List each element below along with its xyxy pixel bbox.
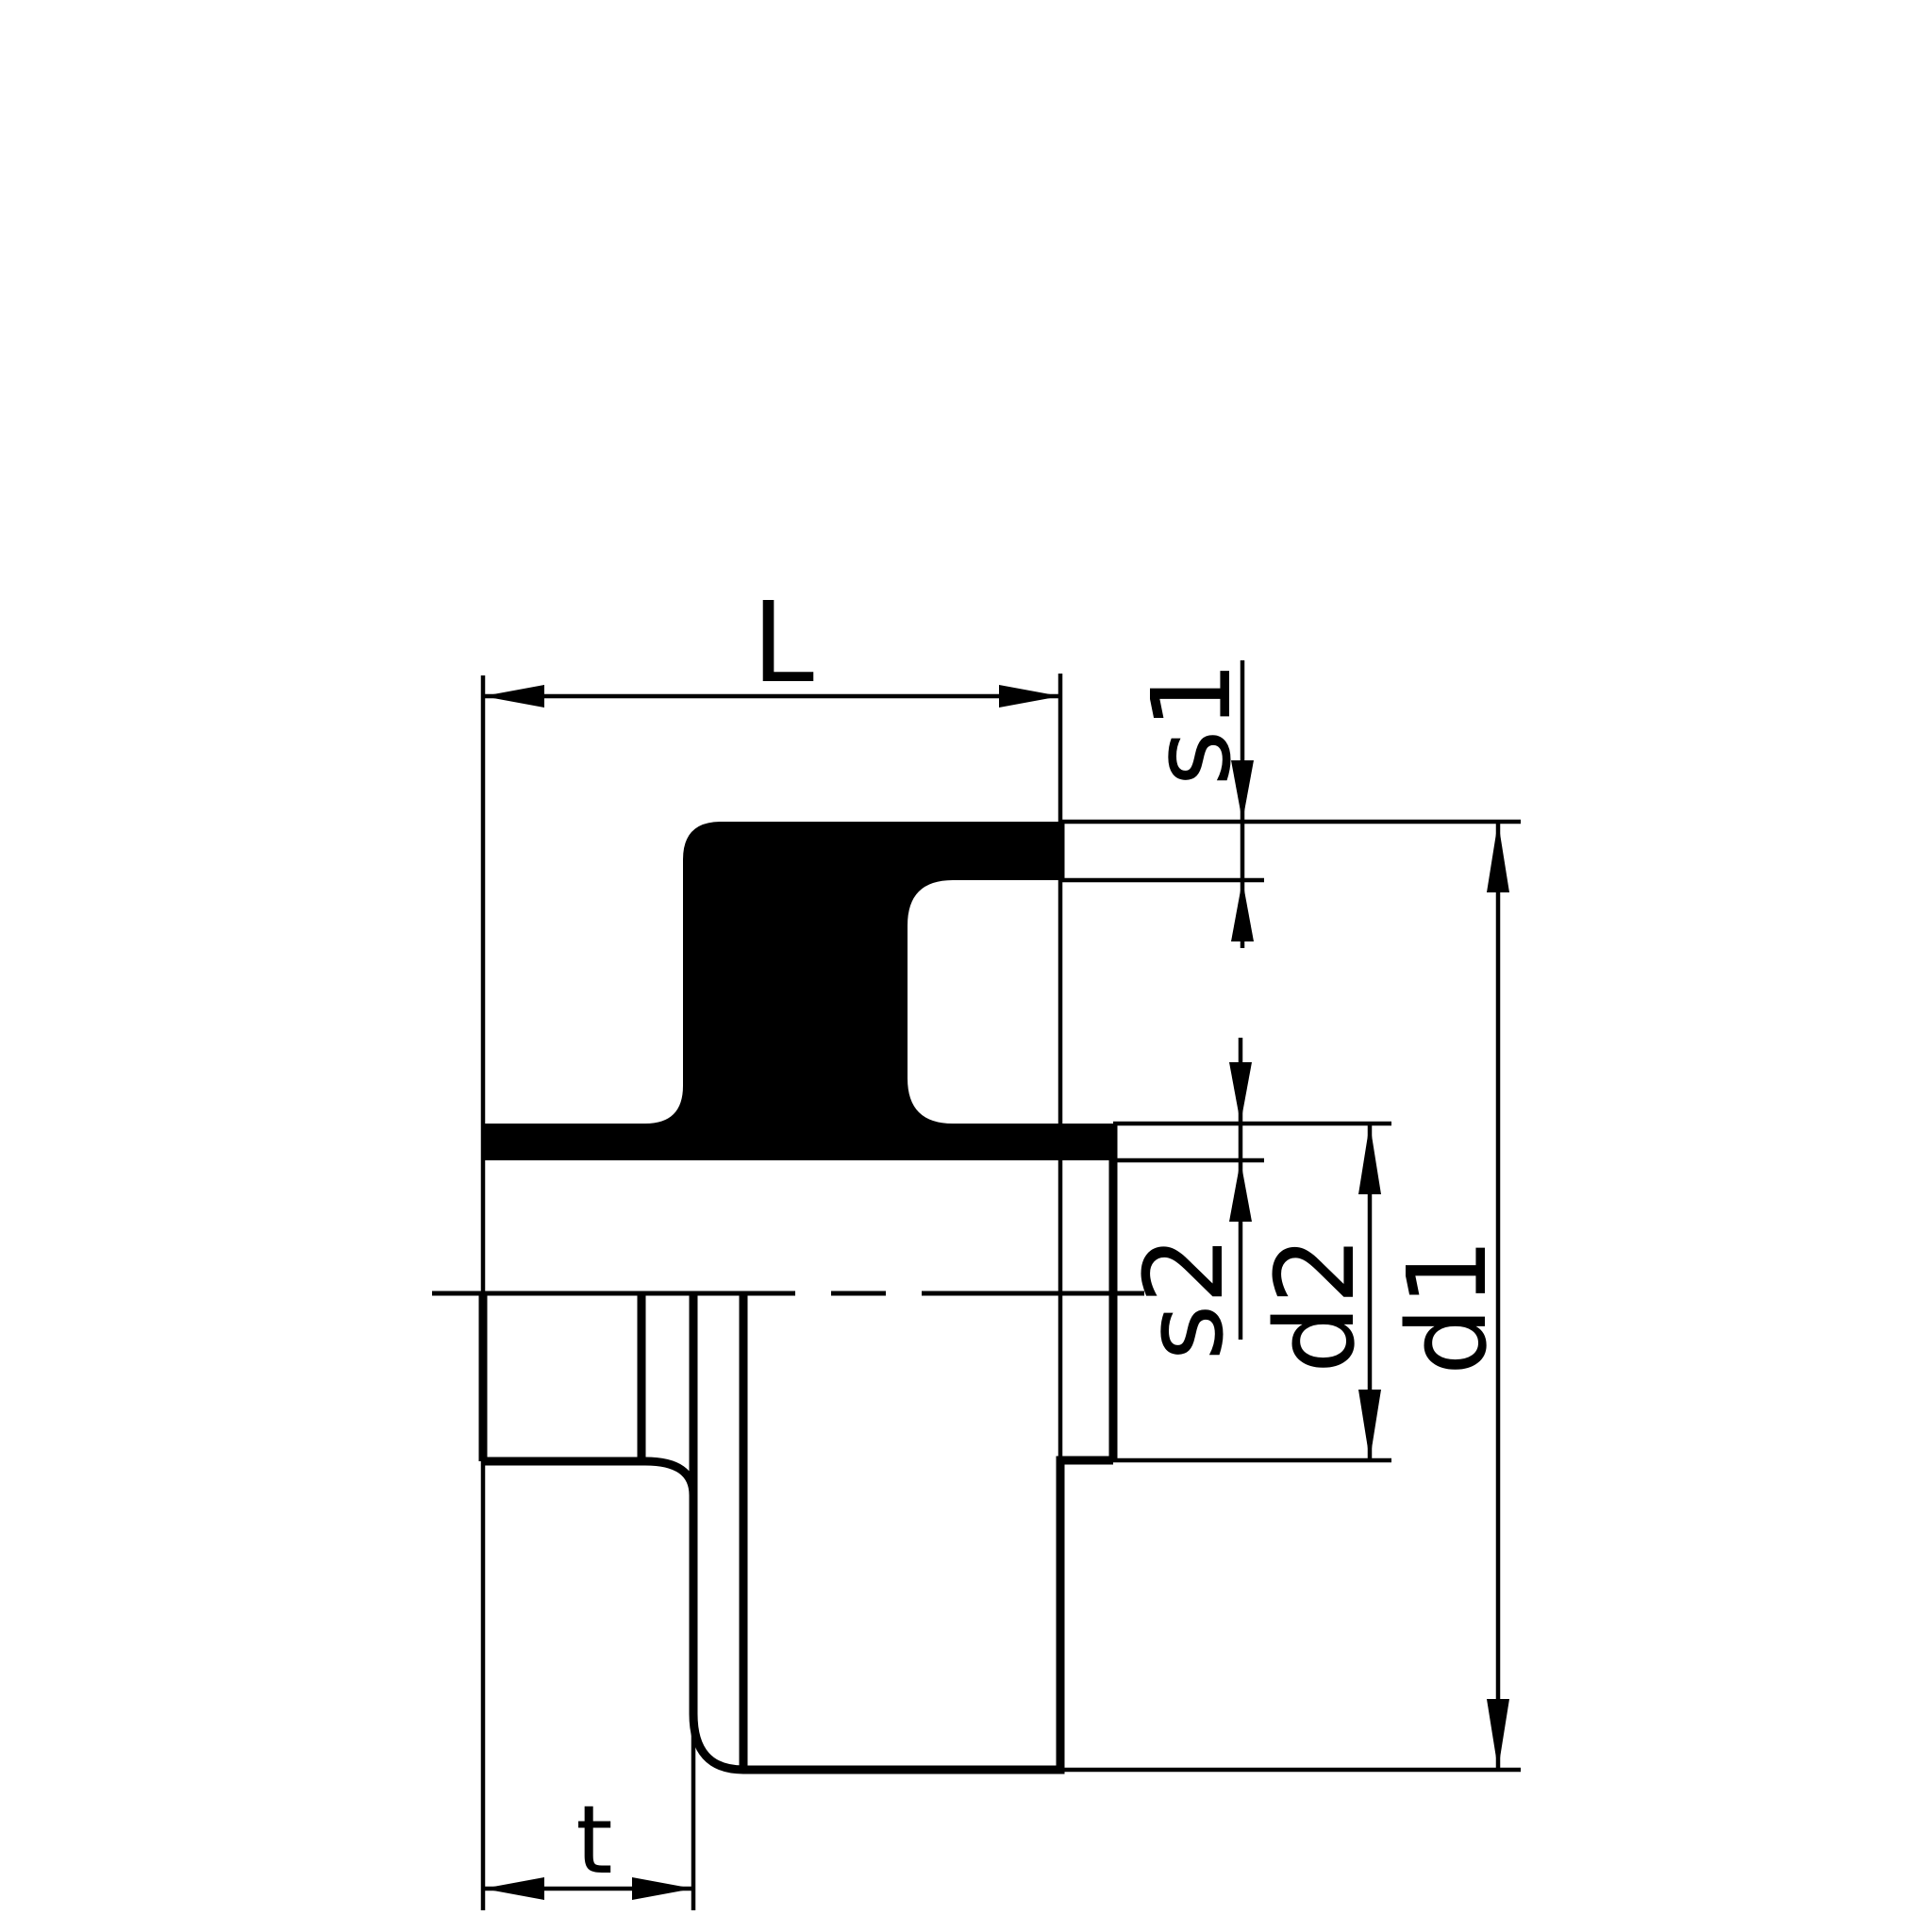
drawing-canvas: L s1 s2 d2 d1 t (0, 0, 1932, 1932)
drawing-background (0, 0, 1932, 1932)
label-L: L (752, 577, 814, 708)
label-d2: d2 (1253, 1236, 1379, 1374)
label-d1: d1 (1385, 1238, 1511, 1375)
label-s2: s2 (1122, 1235, 1248, 1360)
technical-drawing-svg: L s1 s2 d2 d1 t (0, 0, 1932, 1932)
label-t: t (575, 1785, 612, 1895)
label-s1: s1 (1129, 660, 1256, 786)
